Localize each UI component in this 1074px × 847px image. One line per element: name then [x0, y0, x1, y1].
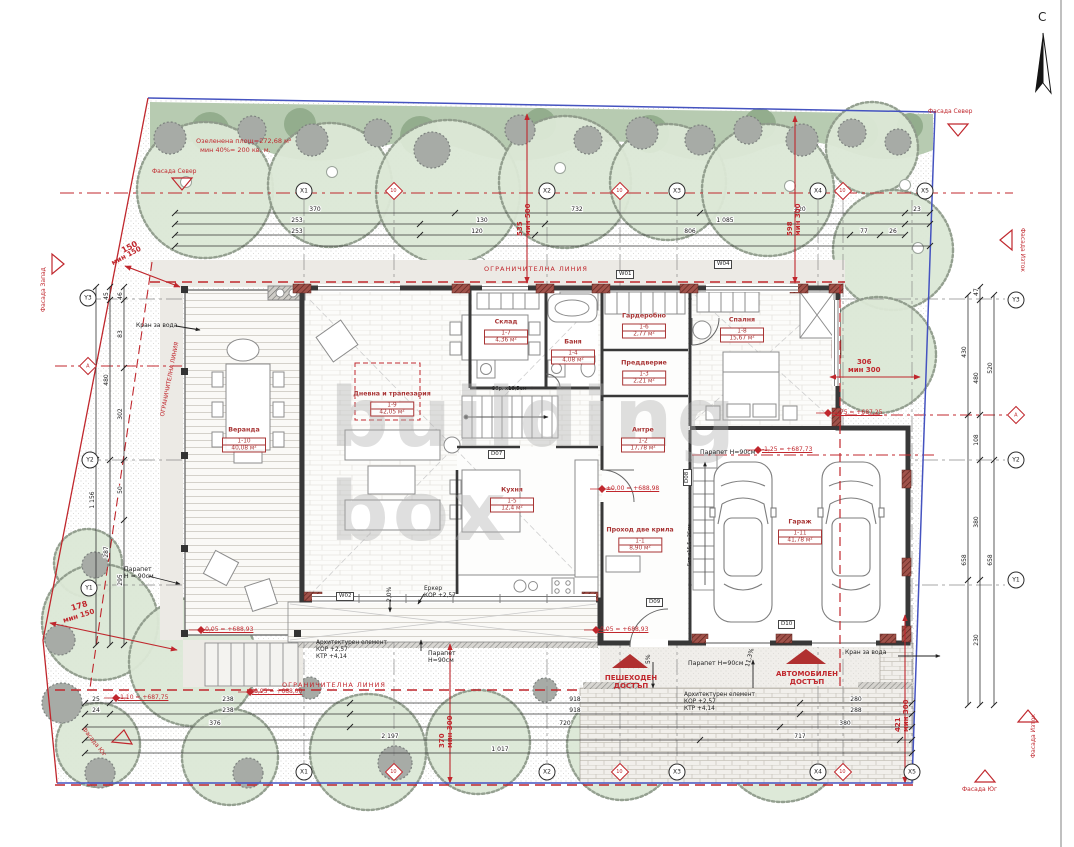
bush — [45, 625, 75, 655]
tree — [833, 190, 953, 310]
dim-value: 480 — [103, 374, 110, 386]
bush — [364, 119, 392, 147]
tree — [310, 694, 426, 810]
dim-value: 806 — [684, 228, 696, 235]
dim-value: 23 — [913, 206, 921, 213]
plan-canvas: 370732420232531301 085253120806772625238… — [0, 0, 1074, 847]
north-arrow-icon — [1035, 33, 1051, 93]
dim-value: 130 — [476, 217, 488, 224]
bush — [734, 116, 762, 144]
bush — [885, 129, 911, 155]
north-label: С — [1038, 10, 1046, 24]
bush — [414, 132, 450, 168]
dim-value: 288 — [850, 707, 862, 714]
car-icon — [710, 462, 776, 622]
bush — [505, 115, 535, 145]
tree-trunk — [555, 163, 566, 174]
bush — [685, 125, 715, 155]
dim-value: 2 197 — [381, 733, 398, 740]
dim-value: 83 — [117, 330, 124, 338]
bush — [574, 126, 602, 154]
dim-value: 48 — [89, 292, 96, 300]
tree-trunk — [785, 181, 796, 192]
bush — [838, 119, 866, 147]
tree-trunk — [900, 180, 911, 191]
dim-value: 420 — [794, 206, 806, 213]
site-plan-drawing: 370732420232531301 085253120806772625238… — [0, 0, 1074, 847]
dim-value: 658 — [961, 554, 968, 566]
dim-value: 430 — [961, 346, 968, 358]
dim-value: 1 017 — [491, 746, 508, 753]
dim-value: 47 — [973, 288, 980, 296]
dim-value: 280 — [850, 696, 862, 703]
dim-value: 50 — [117, 486, 124, 494]
tree — [426, 690, 530, 794]
dim-value: 24 — [92, 707, 100, 714]
dim-value: 1 085 — [716, 217, 733, 224]
dim-value: 370 — [309, 206, 321, 213]
dim-value: 25 — [92, 696, 100, 703]
dim-value: 120 — [471, 228, 483, 235]
dim-value: 918 — [569, 696, 581, 703]
bush — [378, 746, 412, 780]
dim-value: 380 — [839, 720, 851, 727]
tree-trunk — [913, 243, 924, 254]
dim-value: 45 — [103, 292, 110, 300]
dim-value: 302 — [117, 408, 124, 420]
dim-value: 720 — [559, 720, 571, 727]
bush — [626, 117, 658, 149]
dim-value: 918 — [569, 707, 581, 714]
tree — [182, 709, 278, 805]
dim-value: 717 — [794, 733, 806, 740]
dim-value: 658 — [987, 554, 994, 566]
dim-value: 108 — [973, 434, 980, 446]
car-icon — [818, 462, 884, 622]
dim-value: 238 — [222, 696, 234, 703]
tree — [376, 120, 520, 264]
dim-value: 238 — [222, 707, 234, 714]
dim-value: 253 — [291, 217, 303, 224]
dim-value: 26 — [889, 228, 897, 235]
bush — [238, 116, 266, 144]
dim-value: 253 — [291, 228, 303, 235]
dim-value: 230 — [973, 634, 980, 646]
dim-value: 287 — [103, 546, 110, 558]
bush — [296, 124, 328, 156]
dim-value: 380 — [973, 516, 980, 528]
bush — [154, 122, 186, 154]
dim-value: 46 — [117, 292, 124, 300]
dim-value: 376 — [209, 720, 221, 727]
dim-value: 77 — [860, 228, 868, 235]
tree-trunk — [83, 585, 94, 596]
dim-value: 295 — [117, 574, 124, 586]
dim-value: 520 — [987, 362, 994, 374]
bush — [786, 124, 818, 156]
dim-value: 1 156 — [89, 491, 96, 508]
dim-value: 732 — [571, 206, 583, 213]
dim-value: 480 — [973, 372, 980, 384]
tree-trunk — [327, 167, 338, 178]
